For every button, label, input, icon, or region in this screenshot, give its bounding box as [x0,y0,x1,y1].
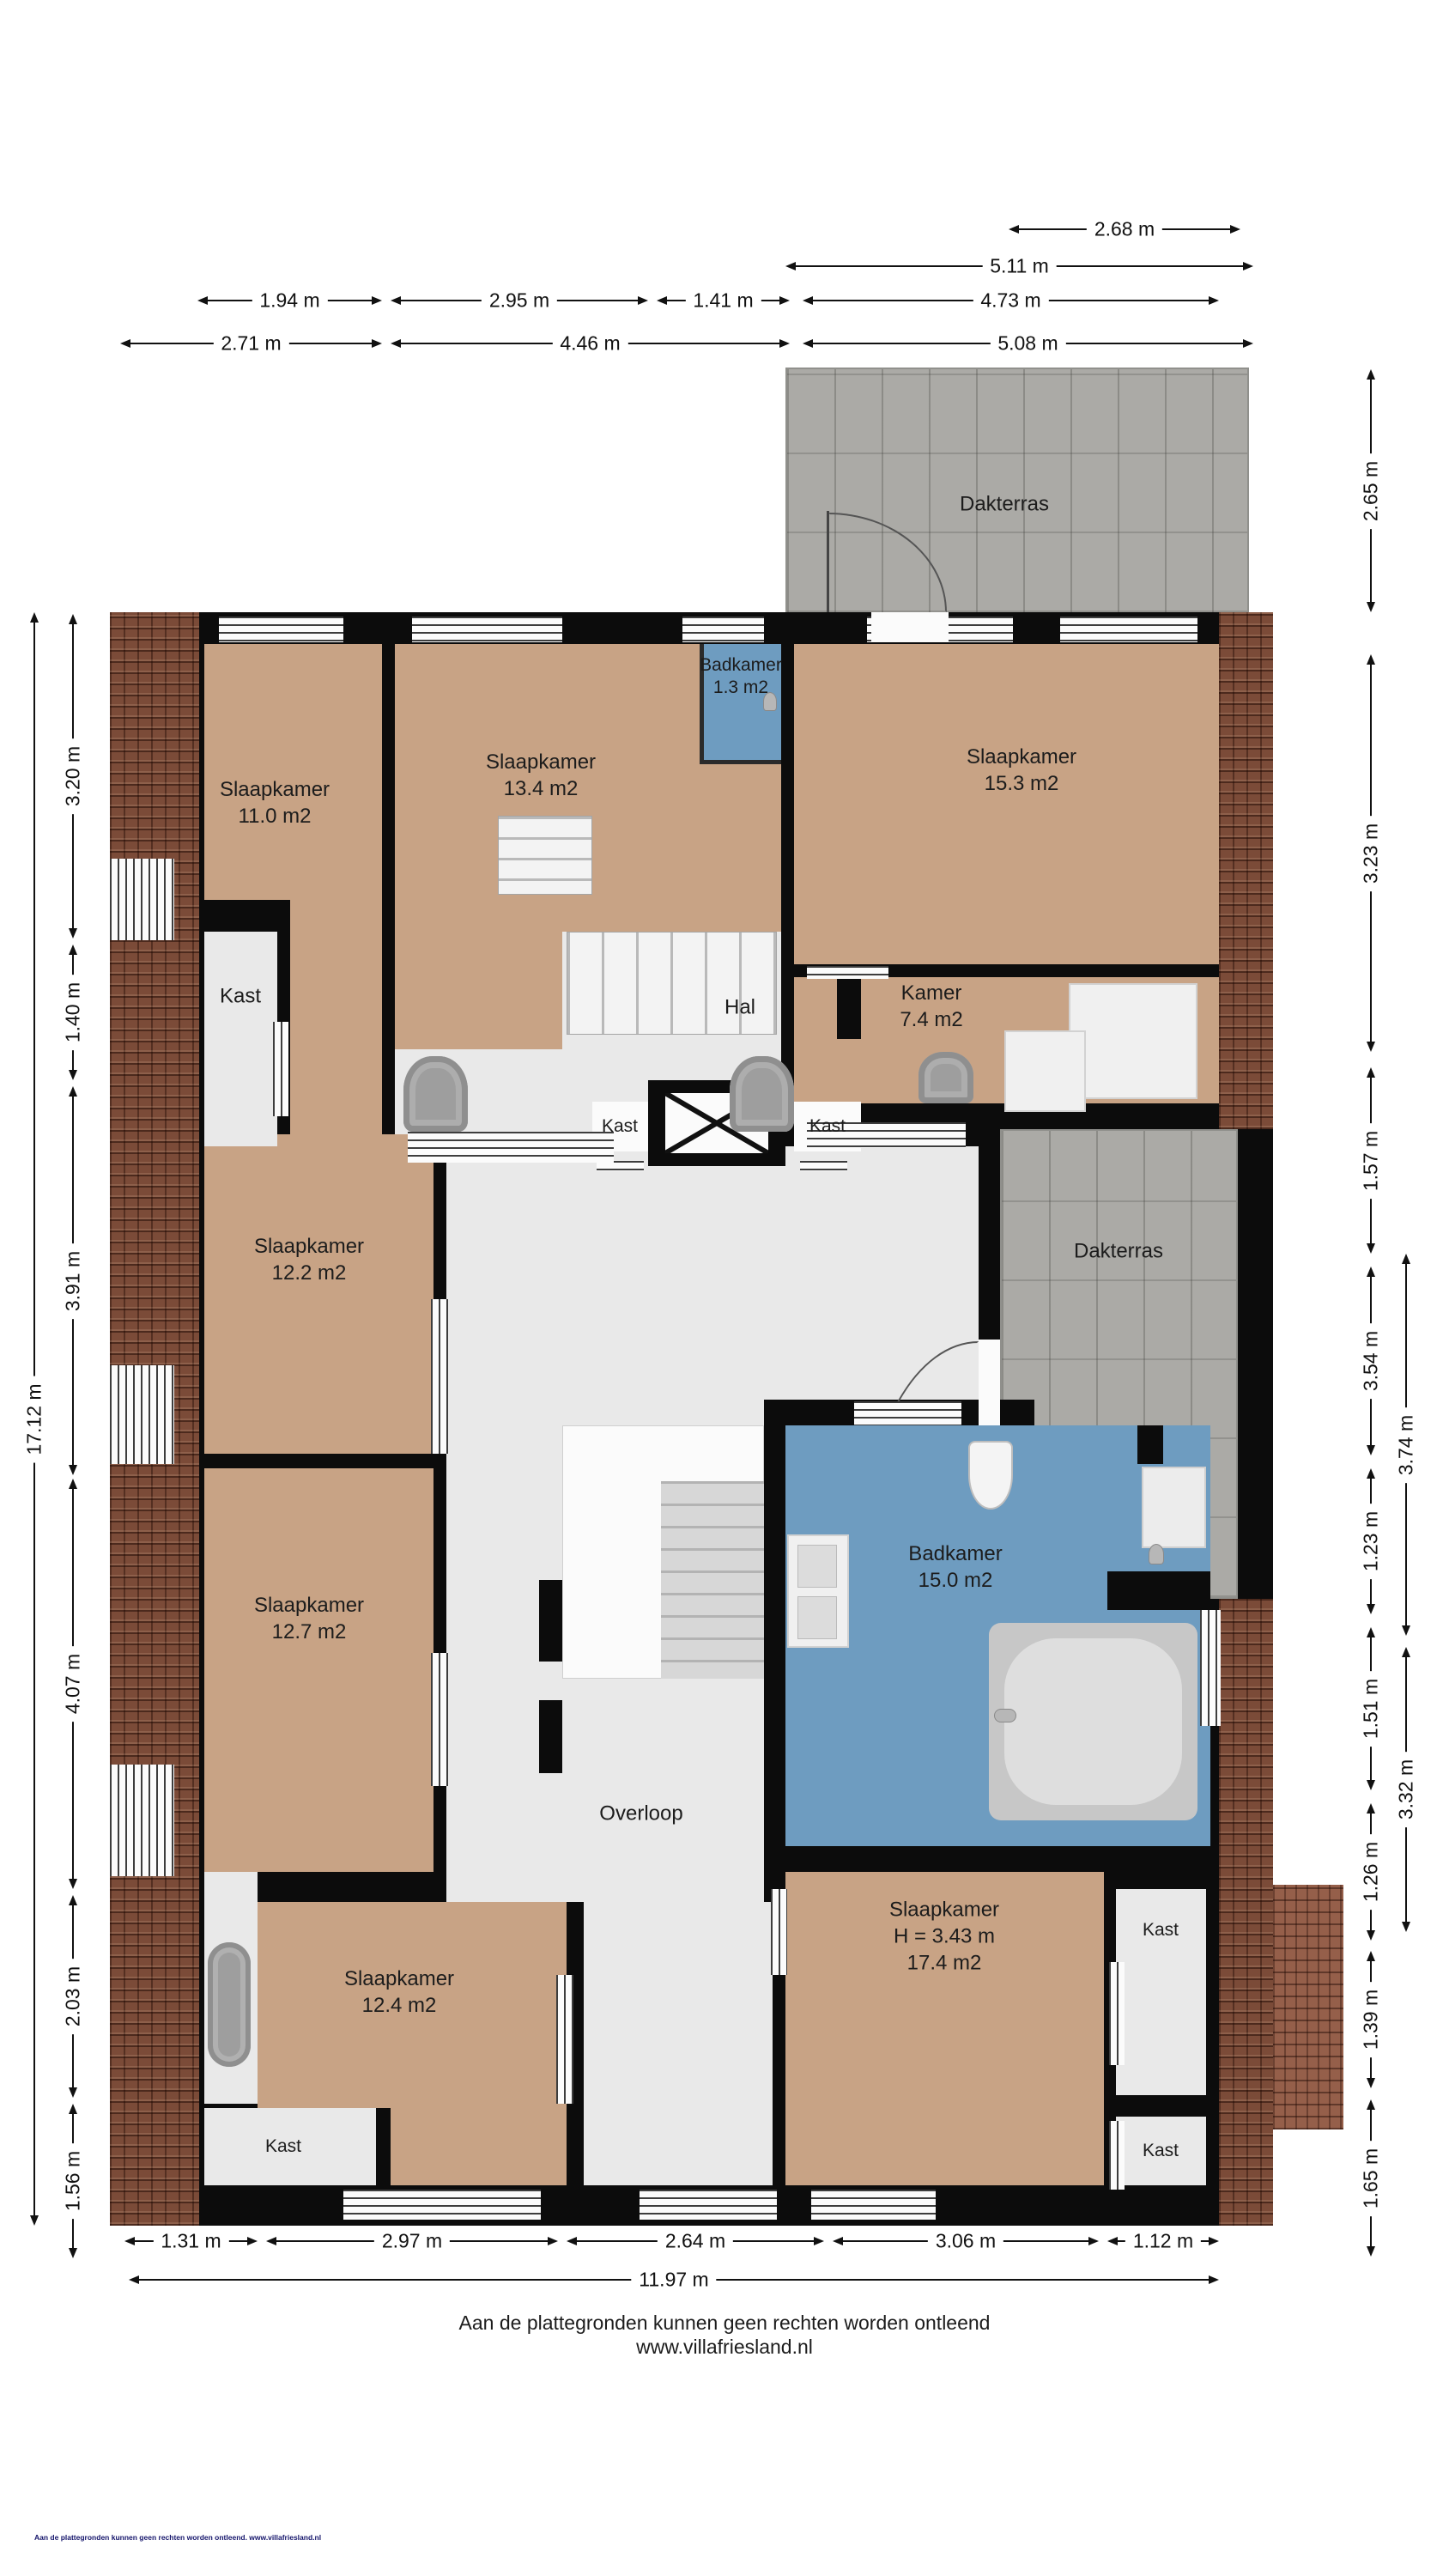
disclaimer-text: Aan de plattegronden kunnen geen rechten… [0,2312,1449,2335]
room-label-kast-midden-rechts: Kast [809,1115,846,1138]
dimension-right-374: 3.74 m [1396,1254,1416,1636]
window [408,1132,614,1163]
dimension-top-473: 4.73 m [803,290,1219,311]
brick-edge-right-bottom [1219,1599,1273,2226]
faucet-icon [1149,1544,1164,1564]
room-corridor-strip [290,900,382,1146]
door-marks [273,1022,288,1116]
room-label-slaapkamer-124: Slaapkamer12.4 m2 [344,1965,454,2019]
room-slaapkamer-124-b [391,2108,567,2185]
window [110,1365,174,1464]
dimension-left-203: 2.03 m [63,1895,83,2098]
dimension-top-446: 4.46 m [391,333,790,354]
bathroom-wall-stub [1137,1425,1163,1464]
brick-edge-right-top [1219,612,1273,1129]
dimension-top-268: 2.68 m [1009,219,1240,240]
room-overloop-corridor [584,1902,773,2185]
bathroom-wall-stub [1107,1571,1210,1610]
sink-icon [403,1056,468,1132]
dimension-top-511: 5.11 m [785,256,1253,276]
door-marks [1109,1962,1125,2065]
room-label-slaapkamer-134: Slaapkamer13.4 m2 [486,749,596,802]
dimension-right-123: 1.23 m [1361,1468,1381,1614]
room-label-dakterras-top: Dakterras [960,491,1049,518]
stair-wall-stub [539,1580,562,1662]
dimension-left-total: 17.12 m [24,612,45,2226]
sink-icon [919,1052,973,1103]
dimension-bottom-131: 1.31 m [124,2231,258,2251]
stairs-icon [498,816,592,895]
room-label-kast-rechtsonder: Kast [1143,2140,1179,2162]
toilet-icon [968,1441,1013,1510]
room-slaapkamer-127 [204,1468,433,1872]
window [682,617,764,642]
door-gap [871,612,949,642]
door-marks [800,1161,847,1171]
roof-brick-block [1273,1885,1343,2129]
room-slaapkamer-11 [204,644,382,900]
stair-wall-stub [837,979,861,1039]
room-overloop-upper [446,1146,979,1400]
bathtub-icon [208,1942,251,2067]
room-slaapkamer-122 [204,1134,433,1454]
room-label-badkamer-groot: Badkamer15.0 m2 [908,1540,1002,1594]
tiny-disclaimer-text: Aan de plattegronden kunnen geen rechten… [34,2533,321,2542]
door-marks [556,1975,573,2104]
dimension-top-508: 5.08 m [803,333,1253,354]
dimension-left-391: 3.91 m [63,1086,83,1475]
dimension-bottom-264: 2.64 m [567,2231,824,2251]
dimension-left-320: 3.20 m [63,614,83,939]
room-label-slaapkamer-127: Slaapkamer12.7 m2 [254,1592,364,1645]
room-slaapkamer-153 [794,644,1219,964]
dimension-top-295: 2.95 m [391,290,648,311]
window [110,859,174,940]
window [343,2190,541,2220]
dimension-right-265: 2.65 m [1361,369,1381,612]
window [640,2190,777,2220]
window [219,617,343,642]
room-label-kamer: Kamer7.4 m2 [900,980,962,1033]
sink-icon [730,1056,794,1132]
room-label-slaapkamer-122: Slaapkamer12.2 m2 [254,1233,364,1286]
room-label-dakterras-midden: Dakterras [1074,1238,1163,1265]
door-marks [854,1401,961,1425]
door-marks [771,1889,787,1975]
dimension-right-157: 1.57 m [1361,1067,1381,1254]
room-label-overloop: Overloop [599,1801,682,1827]
room-label-kast-linksonder: Kast [265,2136,301,2158]
double-sink-icon [787,1534,849,1648]
dimension-right-354: 3.54 m [1361,1267,1381,1455]
floorplan-canvas: Dakterras Slaapkamer11.0 m2 Slaapkamer13… [0,0,1449,2576]
dimension-right-151: 1.51 m [1361,1627,1381,1790]
website-text: www.villafriesland.nl [0,2336,1449,2359]
door-marks [431,1299,448,1454]
dimension-top-194: 1.94 m [197,290,382,311]
door-marks [431,1653,448,1786]
room-label-kast-rechtsboven: Kast [1143,1919,1179,1941]
bathtub-icon [989,1623,1197,1820]
dimension-right-165: 1.65 m [1361,2099,1381,2257]
dimension-left-407: 4.07 m [63,1479,83,1889]
dimension-right-126: 1.26 m [1361,1803,1381,1941]
dimension-top-141: 1.41 m [657,290,790,311]
room-label-hal: Hal [724,994,755,1021]
room-label-slaapkamer-174: SlaapkamerH = 3.43 m17.4 m2 [889,1897,999,1977]
room-label-slaapkamer-153: Slaapkamer15.3 m2 [967,744,1076,797]
dimension-bottom-297: 2.97 m [266,2231,558,2251]
dimension-right-332: 3.32 m [1396,1647,1416,1932]
stair-wall-stub [539,1700,562,1773]
room-label-kast-midden-links: Kast [602,1115,638,1138]
door-marks [807,966,888,979]
dimension-bottom-total: 11.97 m [129,2269,1219,2290]
room-kast-linksboven [204,932,277,1146]
closet-icon [1069,983,1197,1099]
window [1060,617,1197,642]
window [412,617,562,642]
dimension-top-271: 2.71 m [120,333,382,354]
room-label-badkamer-klein: Badkamer1.3 m2 [700,654,782,699]
dimension-bottom-306: 3.06 m [833,2231,1099,2251]
dimension-left-140: 1.40 m [63,945,83,1080]
window [1200,1610,1221,1726]
dimension-bottom-112: 1.12 m [1107,2231,1219,2251]
window [110,1765,174,1876]
room-label-kast-linksboven: Kast [220,983,261,1010]
dimension-right-139: 1.39 m [1361,1951,1381,2088]
stairs-icon [661,1481,764,1679]
dimension-right-323: 3.23 m [1361,654,1381,1052]
door-leaf [827,511,829,614]
door-marks [1109,2121,1125,2190]
closet-icon [1004,1030,1086,1112]
dimension-left-156: 1.56 m [63,2104,83,2258]
washstand-icon [1142,1467,1206,1548]
window [811,2190,936,2220]
room-label-slaapkamer-11: Slaapkamer11.0 m2 [220,776,330,829]
